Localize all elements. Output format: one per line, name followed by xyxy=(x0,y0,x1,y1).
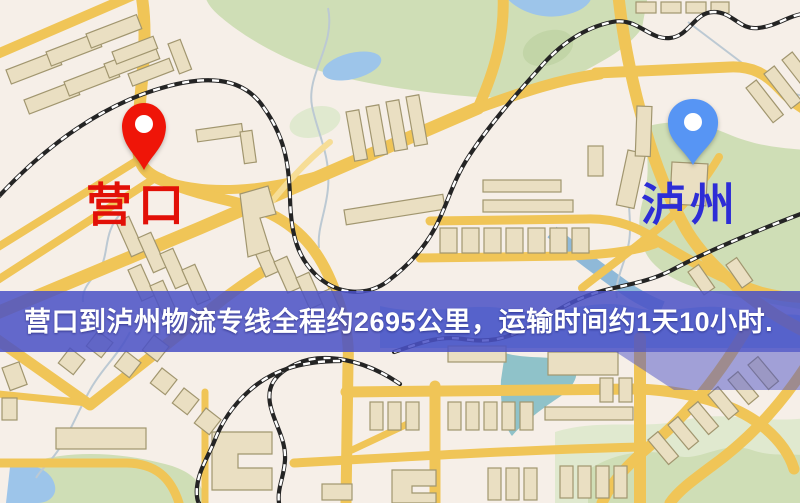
banner-text: 营口到泸州物流专线全程约2695公里，运输时间约1天10小时. xyxy=(24,306,773,337)
logistics-route-map: 营口到泸州物流专线全程约2695公里，运输时间约1天10小时. 营口 泸州 xyxy=(0,0,800,503)
map-canvas: 营口到泸州物流专线全程约2695公里，运输时间约1天10小时. 营口 泸州 xyxy=(0,0,800,503)
destination-pin-hole xyxy=(684,113,702,131)
origin-pin-hole xyxy=(135,115,153,133)
origin-label: 营口 xyxy=(86,179,190,231)
destination-label: 泸州 xyxy=(641,179,739,230)
